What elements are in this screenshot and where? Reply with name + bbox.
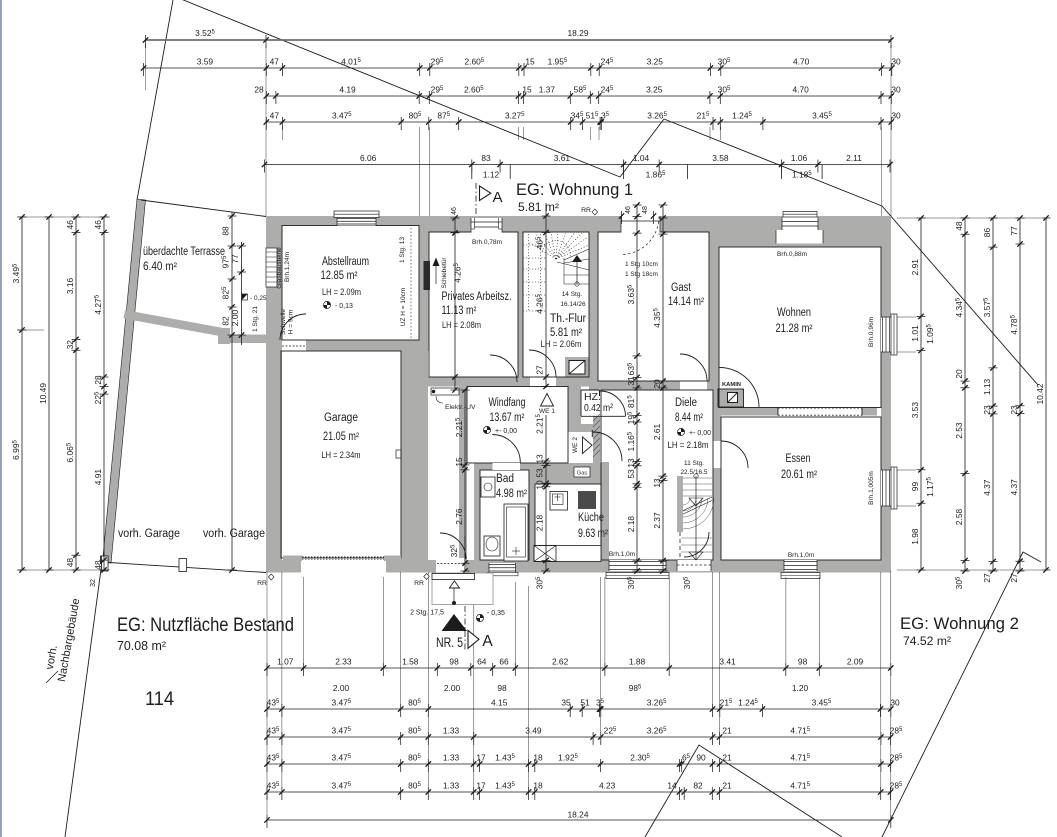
svg-text:30: 30 [890,698,900,708]
svg-text:27: 27 [1009,573,1019,583]
svg-text:70.08 m²: 70.08 m² [117,638,167,653]
svg-text:17: 17 [476,753,486,763]
svg-text:1.20: 1.20 [792,683,809,693]
svg-text:48: 48 [93,560,103,570]
svg-text:1.33: 1.33 [443,753,460,763]
svg-text:82: 82 [221,316,231,326]
svg-text:1.12: 1.12 [483,170,500,180]
svg-text:3.58: 3.58 [712,153,729,163]
svg-text:Abstellraum: Abstellraum [322,256,369,268]
svg-text:Privates Arbeitsz.: Privates Arbeitsz. [442,291,512,303]
svg-text:2.61: 2.61 [652,423,662,440]
svg-text:64: 64 [477,657,487,667]
svg-text:2.00: 2.00 [333,683,350,693]
svg-text:6.06: 6.06 [360,153,377,163]
svg-text:10.42: 10.42 [1035,383,1045,404]
svg-text:1.04: 1.04 [633,153,650,163]
svg-text:1.06: 1.06 [791,153,808,163]
svg-text:überdachte Terrasse: überdachte Terrasse [143,246,225,258]
svg-text:66: 66 [499,657,509,667]
svg-text:RR: RR [257,580,267,587]
svg-text:5.81 m²: 5.81 m² [550,327,582,339]
svg-text:Gast: Gast [671,282,692,294]
svg-text:2.62: 2.62 [552,657,569,667]
svg-text:13: 13 [626,458,636,468]
svg-text:2 Stg. 17,5: 2 Stg. 17,5 [410,610,444,617]
svg-text:EG: Wohnung 2: EG: Wohnung 2 [900,615,1019,633]
svg-text:4.98 m²: 4.98 m² [496,488,527,500]
svg-text:30: 30 [891,111,901,121]
svg-text:2.09: 2.09 [847,657,864,667]
svg-text:1.88: 1.88 [629,657,646,667]
svg-text:Brh.0,78m: Brh.0,78m [472,239,502,246]
svg-text:NR. 5: NR. 5 [436,635,463,650]
svg-text:3.25: 3.25 [646,85,663,95]
svg-text:4.37: 4.37 [982,479,992,496]
svg-text:48: 48 [65,558,75,568]
svg-text:1 Stg 18cm: 1 Stg 18cm [625,271,658,278]
svg-text:3.59: 3.59 [197,57,214,67]
svg-text:vorh. Garage: vorh. Garage [118,528,180,540]
svg-text:Bad: Bad [496,473,514,485]
svg-text:27: 27 [535,365,545,375]
svg-text:4.91: 4.91 [93,469,103,486]
svg-text:1 Stg. 13: 1 Stg. 13 [399,237,406,263]
svg-text:9.63 m²: 9.63 m² [578,528,608,540]
svg-text:30: 30 [891,85,901,95]
svg-text:UZ H = 10cm: UZ H = 10cm [400,288,407,326]
svg-text:Wohnen: Wohnen [777,307,811,319]
svg-text:Brh.0,88m: Brh.0,88m [777,251,807,258]
svg-text:4.19: 4.19 [339,85,356,95]
svg-text:2.37: 2.37 [652,512,662,529]
svg-text:18.29: 18.29 [568,28,589,38]
svg-text:13.67 m²: 13.67 m² [490,412,525,424]
svg-text:98: 98 [449,657,459,667]
svg-text:23: 23 [1009,405,1019,415]
svg-text:11 Stg.: 11 Stg. [684,460,704,467]
svg-text:21: 21 [722,726,732,736]
svg-text:1.13: 1.13 [982,379,992,396]
svg-text:48: 48 [642,206,649,214]
svg-text:2.53: 2.53 [954,422,964,439]
svg-text:32: 32 [90,579,97,587]
svg-text:2.11: 2.11 [846,153,862,163]
svg-text:5.81 m²: 5.81 m² [518,202,559,214]
svg-text:1 Stg. 21: 1 Stg. 21 [252,306,259,332]
svg-text:Brh.1,005m: Brh.1,005m [868,471,875,505]
svg-text:20: 20 [954,369,964,379]
svg-text:1.01: 1.01 [910,325,920,342]
svg-text:2.00: 2.00 [444,683,461,693]
svg-text:46: 46 [93,220,103,230]
svg-text:21: 21 [722,781,732,791]
svg-text:EG: Nutzfläche Bestand: EG: Nutzfläche Bestand [117,614,294,636]
svg-text:- 0,25: - 0,25 [250,295,267,302]
svg-text:28: 28 [254,85,264,95]
svg-text:53: 53 [535,468,545,478]
svg-text:20.61 m²: 20.61 m² [781,469,817,481]
svg-text:Küche: Küche [578,512,604,524]
svg-text:2.18: 2.18 [626,516,636,533]
svg-text:99: 99 [910,482,920,492]
svg-text:Essen: Essen [786,453,811,465]
svg-text:46: 46 [65,220,75,230]
svg-text:15: 15 [454,457,464,467]
svg-text:Diele: Diele [675,397,697,409]
svg-text:WE 2: WE 2 [572,437,579,453]
svg-text:8.44 m²: 8.44 m² [675,412,703,424]
svg-text:Elektr.-UV: Elektr.-UV [445,404,476,411]
svg-text:Brh.1,0m: Brh.1,0m [788,552,814,559]
svg-text:46: 46 [451,207,458,215]
svg-text:23: 23 [982,405,992,415]
svg-text:15: 15 [522,85,532,95]
svg-text:47: 47 [270,57,280,67]
svg-text:2.58: 2.58 [954,508,964,525]
svg-text:32: 32 [65,340,75,350]
svg-text:13: 13 [652,478,662,488]
svg-text:14.14 m²: 14.14 m² [668,296,704,308]
svg-text:27: 27 [982,573,992,583]
svg-text:90: 90 [696,753,706,763]
svg-text:3.49: 3.49 [525,726,542,736]
svg-text:4.70: 4.70 [793,57,810,67]
svg-text:98: 98 [798,657,808,667]
svg-text:Th.-Flur: Th.-Flur [550,313,586,325]
svg-text:2.91: 2.91 [910,259,920,276]
svg-text:16.14/26: 16.14/26 [560,301,586,308]
svg-text:A: A [482,633,493,650]
svg-text:14: 14 [667,781,677,791]
svg-text:28: 28 [93,375,103,385]
svg-text:51: 51 [580,698,590,708]
svg-text:Garage: Garage [324,412,358,424]
svg-text:1.07: 1.07 [277,657,294,667]
svg-text:3.61: 3.61 [554,153,571,163]
svg-text:Windfang: Windfang [489,397,526,409]
svg-text:17: 17 [476,781,486,791]
svg-text:18: 18 [533,781,543,791]
svg-text:EG: Wohnung 1: EG: Wohnung 1 [516,181,633,199]
svg-text:1.33: 1.33 [443,781,460,791]
svg-text:1.58: 1.58 [402,657,419,667]
svg-text:83: 83 [481,153,491,163]
svg-text:3.53: 3.53 [910,402,920,419]
svg-text:vorh. Garage: vorh. Garage [203,528,265,540]
svg-text:12.85 m²: 12.85 m² [321,270,358,282]
svg-text:Glasbausteine: Glasbausteine [276,247,283,289]
svg-text:A: A [493,189,503,206]
svg-text:30: 30 [891,57,901,67]
svg-text:82: 82 [693,781,703,791]
svg-text:LH = 2.08m: LH = 2.08m [442,320,481,330]
svg-text:18.24: 18.24 [568,810,589,820]
svg-text:10: 10 [535,480,545,490]
svg-text:11.13 m²: 11.13 m² [442,305,477,317]
svg-text:86: 86 [982,228,992,238]
svg-text:1.37: 1.37 [539,85,556,95]
svg-text:2.33: 2.33 [335,657,352,667]
svg-text:14 Stg.: 14 Stg. [562,291,583,298]
svg-text:98: 98 [497,683,507,693]
svg-text:- 0,35: - 0,35 [487,610,505,617]
svg-text:1.33: 1.33 [443,726,460,736]
svg-text:88: 88 [221,226,231,236]
svg-text:1.98: 1.98 [910,528,920,545]
svg-text:6.40 m²: 6.40 m² [143,261,177,273]
svg-text:Brh.0,96m: Brh.0,96m [868,317,875,347]
svg-text:20: 20 [652,379,662,389]
svg-text:21.05 m²: 21.05 m² [323,431,359,443]
svg-text:1 Stg 10cm: 1 Stg 10cm [625,261,658,268]
svg-text:77: 77 [1009,226,1019,236]
svg-text:RR: RR [581,207,591,214]
svg-text:46: 46 [625,206,632,214]
svg-text:Gas: Gas [577,471,587,477]
svg-text:RR: RR [414,580,424,587]
svg-text:15: 15 [525,57,535,67]
svg-text:10.49: 10.49 [38,383,48,404]
svg-text:47: 47 [270,111,280,121]
svg-text:KAMIN: KAMIN [722,382,741,388]
svg-text:4.70: 4.70 [793,85,810,95]
svg-text:Brh.1,24m: Brh.1,24m [284,252,291,282]
svg-text:LH = 2.18m: LH = 2.18m [668,440,709,450]
svg-text:WE 1: WE 1 [539,408,555,415]
svg-text:+- 0,00: +- 0,00 [689,430,711,437]
svg-text:21.28 m²: 21.28 m² [776,323,813,335]
svg-text:4.37: 4.37 [1009,479,1019,496]
svg-text:18: 18 [533,753,543,763]
svg-text:- 0,13: - 0,13 [335,303,353,310]
svg-text:2.18: 2.18 [535,515,545,532]
svg-text:2.00: 2.00 [230,310,240,327]
svg-text:+- 0,00: +- 0,00 [495,428,517,435]
svg-text:Brh.1,0m: Brh.1,0m [609,551,635,558]
svg-text:3.16: 3.16 [65,277,75,294]
svg-text:21: 21 [722,753,732,763]
svg-text:LH = 2.06m: LH = 2.06m [541,339,582,349]
svg-text:31: 31 [626,376,636,386]
svg-text:13: 13 [535,454,545,464]
svg-text:2.76: 2.76 [454,508,464,525]
svg-text:77: 77 [230,254,240,264]
svg-text:53: 53 [626,469,636,479]
svg-text:4.15: 4.15 [491,698,508,708]
svg-text:4.23: 4.23 [599,781,616,791]
svg-text:48: 48 [954,221,964,231]
svg-text:Schiebetür: Schiebetür [441,257,448,289]
svg-text:LH = 2.34m: LH = 2.34m [322,450,361,460]
svg-text:LH = 2.09m: LH = 2.09m [322,287,361,297]
svg-text:3.25: 3.25 [647,57,664,67]
svg-text:35: 35 [561,698,571,708]
svg-text:H = 9cm: H = 9cm [288,310,295,334]
svg-text:0.42 m²: 0.42 m² [584,402,613,414]
svg-text:Schwelle: Schwelle [280,309,287,335]
svg-text:3.41: 3.41 [719,657,736,667]
svg-text:114: 114 [145,688,174,710]
svg-text:74.52 m²: 74.52 m² [903,634,951,648]
